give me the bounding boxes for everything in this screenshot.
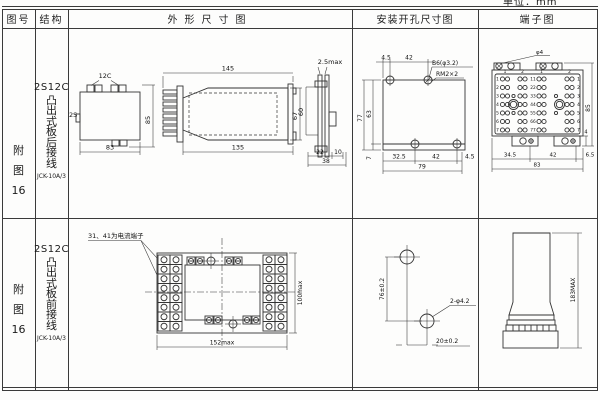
col-num: 2 xyxy=(521,69,524,75)
structure-model-row1: 2S12C xyxy=(34,82,69,93)
dim-42-top: 42 xyxy=(405,55,413,62)
dim-63: 63 xyxy=(366,110,373,118)
col-num: 2 xyxy=(568,69,571,75)
dim-42-terminal: 42 xyxy=(550,153,557,159)
header-terminal: 端子图 xyxy=(478,9,597,28)
terminal-drawing-row1: φ4 1 2 1 2 1 11 1 2 22 2 3 33 3 4 xyxy=(478,28,598,218)
dim-20: 20±0.2 xyxy=(436,338,458,345)
structure-type-row2: 凸出式板前接线 xyxy=(45,258,58,331)
dim-10: 10 xyxy=(334,149,342,156)
col-num: 1 xyxy=(504,69,507,75)
row-num-right: 1 xyxy=(577,77,580,83)
dim-32-5: 32.5 xyxy=(392,154,406,161)
relay-side-silhouette xyxy=(503,233,558,348)
row-num-left: 7 xyxy=(496,128,499,134)
dim-85-terminal: 85 xyxy=(585,104,592,112)
dim-83: 83 xyxy=(106,144,114,152)
col-num: 1 xyxy=(540,69,543,75)
row-num-left: 5 xyxy=(496,111,499,117)
label-12c: 12C xyxy=(99,72,112,80)
header-outline: 外形尺寸图 xyxy=(68,9,352,28)
dim-152max: 152max xyxy=(210,340,235,347)
side-view: 145 135 67 xyxy=(163,65,302,156)
dim-2-5max: 2.5max xyxy=(318,58,343,66)
row-num-right: 3 xyxy=(577,94,580,100)
dim-38: 38 xyxy=(322,158,330,165)
label-rm2x2: RM2×2 xyxy=(436,71,458,78)
dim-7: 7 xyxy=(366,156,373,160)
dim-145: 145 xyxy=(222,65,234,73)
structure-type-row1: 凸出式板后接线 xyxy=(45,96,58,169)
outline-drawing-row1: 12C 2S 83 85 145 135 xyxy=(68,28,352,218)
datasheet-page: 单位：mm 图号 结构 外形尺寸图 安装开孔尺寸图 端子图 附图16 附图16 … xyxy=(0,0,600,400)
pair-num: 77 xyxy=(530,128,536,134)
front-view xyxy=(145,238,299,346)
row-num-right: 7 xyxy=(577,128,580,134)
outline-drawing-row2: 31、41为电流端子 xyxy=(68,218,352,390)
mounting-drawing-row2: 76±0.2 2-φ4.2 20±0.2 xyxy=(352,218,478,390)
fig-no-row1: 附图16 xyxy=(10,141,27,200)
row-num-left: 4 xyxy=(496,102,499,108)
dim-42-bottom: 42 xyxy=(432,154,440,161)
dim-77: 77 xyxy=(357,114,364,122)
panel-section-view: 2.5max 60 22 10 38 xyxy=(297,58,346,167)
structure-cell-row1: 2S12C 凸出式板后接线 JCK-10A/3 xyxy=(35,28,68,218)
dim-4-terminal: 4 xyxy=(584,130,587,136)
terminal-grid: 1 2 1 2 1 11 1 2 22 2 3 33 3 4 44 xyxy=(496,69,580,134)
dim-34-5: 34.5 xyxy=(504,153,517,159)
pair-num: 55 xyxy=(530,111,536,117)
pair-num: 66 xyxy=(530,119,536,125)
fig-no-cell-row2: 附图16 xyxy=(2,218,35,390)
row-num-right: 6 xyxy=(577,119,580,125)
row-num-right: 2 xyxy=(577,85,580,91)
label-2-phi-4-2: 2-φ4.2 xyxy=(450,298,470,305)
header-structure: 结构 xyxy=(35,9,68,28)
pair-num: 22 xyxy=(530,85,536,91)
structure-cell-row2: 2S12C 凸出式板前接线 JCK-10A/3 xyxy=(35,218,68,390)
row-num-left: 1 xyxy=(496,77,499,83)
dim-4-5-bottom: 4.5 xyxy=(465,154,475,161)
label-b6-hole: B6(φ3.2) xyxy=(432,60,458,67)
mounting-drawing-row1: 4.5 42 B6(φ3.2) RM2×2 77 63 7 32.5 42 4.… xyxy=(352,28,478,218)
pair-num: 11 xyxy=(530,77,536,83)
structure-code-row2: JCK-10A/3 xyxy=(37,335,66,342)
table-border-bottom-outer xyxy=(2,390,598,391)
row-num-right: 5 xyxy=(577,111,580,117)
dim-76: 76±0.2 xyxy=(379,278,386,300)
dim-135: 135 xyxy=(232,144,244,152)
dim-183max: 183MAX xyxy=(570,278,577,303)
terminal-drawing-row2: 183MAX xyxy=(478,218,598,390)
fig-no-cell-row1: 附图16 xyxy=(2,28,35,218)
terminal-top-label: φ4 xyxy=(536,50,544,56)
dim-6-5: 6.5 xyxy=(586,153,595,159)
dim-60: 60 xyxy=(297,108,305,116)
dim-4-5-top: 4.5 xyxy=(381,55,391,62)
header-mounting: 安装开孔尺寸图 xyxy=(352,9,478,28)
header-fig-no: 图号 xyxy=(2,9,35,28)
pair-num: 33 xyxy=(530,94,536,100)
table-border-top-outer xyxy=(2,6,598,7)
label-2s: 2S xyxy=(69,111,77,119)
top-view: 12C 2S 83 85 xyxy=(69,72,155,155)
dim-100max: 100max xyxy=(297,280,304,305)
row-num-left: 3 xyxy=(496,94,499,100)
current-terminal-note: 31、41为电流端子 xyxy=(88,231,144,240)
row-num-right: 4 xyxy=(577,102,580,108)
dim-22: 22 xyxy=(316,149,324,156)
pair-num: 44 xyxy=(530,102,536,108)
row-num-left: 6 xyxy=(496,119,499,125)
dim-79: 79 xyxy=(418,164,426,171)
structure-code-row1: JCK-10A/3 xyxy=(37,173,66,180)
mounting-holes xyxy=(384,74,463,150)
dim-83-terminal: 83 xyxy=(534,163,541,169)
row-num-left: 2 xyxy=(496,85,499,91)
dim-85: 85 xyxy=(144,116,152,124)
structure-model-row2: 2S12C xyxy=(34,244,69,255)
fig-no-row2: 附图16 xyxy=(10,280,27,339)
